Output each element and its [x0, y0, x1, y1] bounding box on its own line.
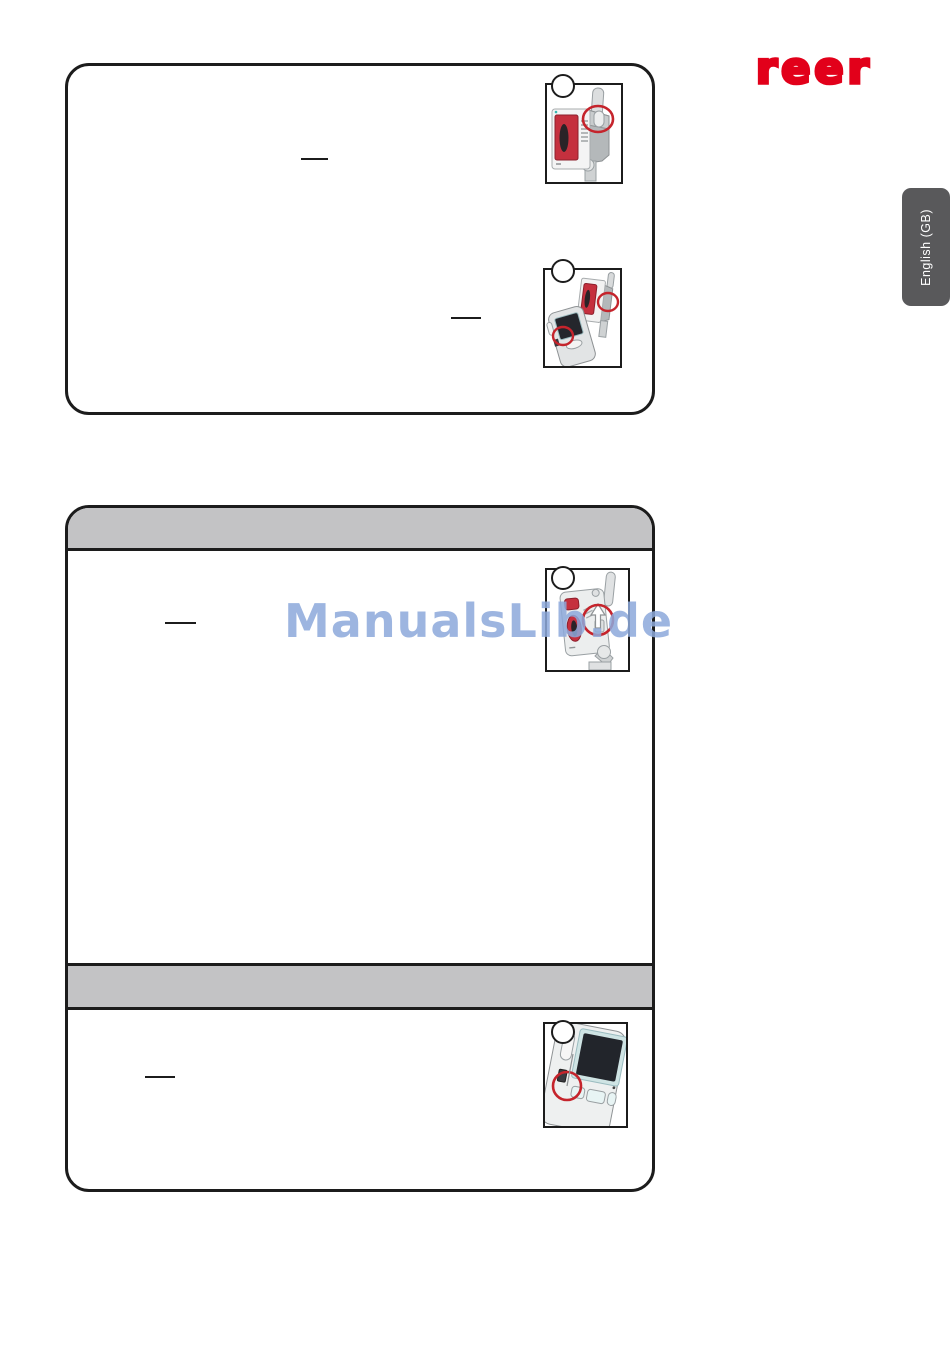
step-circle [551, 259, 575, 283]
redacted-text-underline [451, 317, 481, 319]
section-mid-bar [68, 963, 652, 1010]
section-header-bar [68, 508, 652, 551]
language-tab-label: English (GB) [919, 209, 933, 286]
step-circle [551, 1020, 575, 1044]
language-tab-english-gb: English (GB) [902, 188, 950, 306]
step-circle [551, 566, 575, 590]
redacted-text-underline [165, 622, 196, 624]
redacted-text-underline [145, 1076, 175, 1078]
baby-unit-top-button-illustration [547, 85, 621, 182]
baby-and-parent-unit-link-buttons-figure [543, 268, 622, 368]
reer-logo: reer [756, 48, 873, 91]
top-button [594, 111, 604, 127]
link-buttons-illustration [545, 270, 620, 366]
baby-unit-top-button-figure [545, 83, 623, 184]
step-circle [551, 74, 575, 98]
redacted-text-underline [301, 158, 328, 160]
manual-page: reer English (GB) ManualsLib.de [0, 0, 950, 1348]
